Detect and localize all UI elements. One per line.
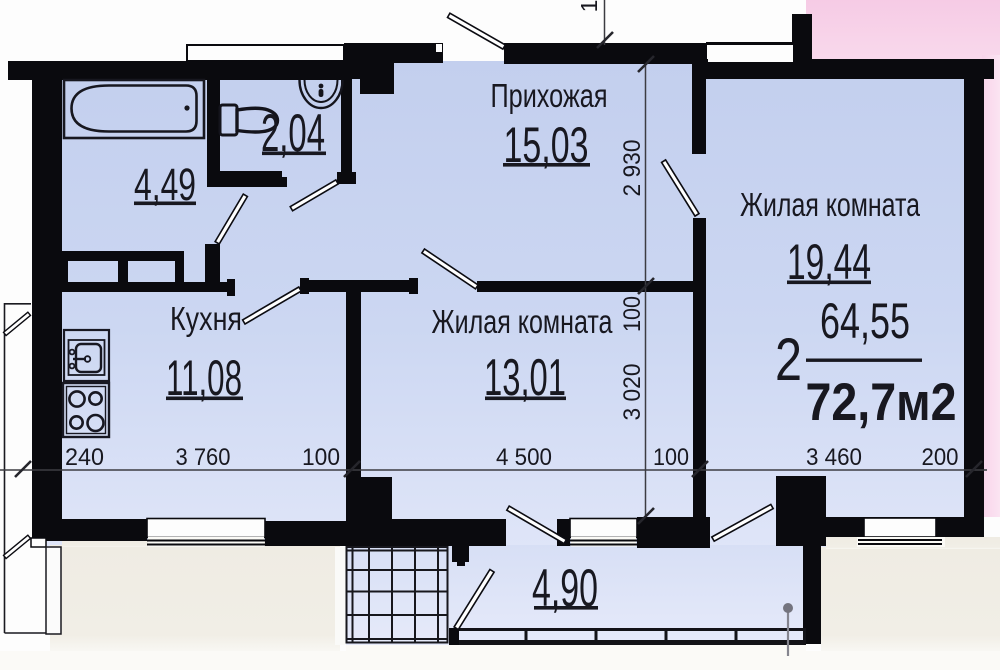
svg-text:2 930: 2 930 [619, 140, 646, 197]
svg-text:Прихожая: Прихожая [491, 77, 608, 114]
svg-text:Кухня: Кухня [170, 300, 242, 337]
svg-text:240: 240 [65, 444, 104, 471]
svg-text:72,7м2: 72,7м2 [806, 373, 957, 432]
svg-text:2: 2 [775, 326, 802, 393]
svg-text:64,55: 64,55 [820, 293, 910, 349]
svg-text:100: 100 [653, 444, 689, 471]
svg-text:3 460: 3 460 [806, 444, 862, 471]
svg-text:1: 1 [576, 0, 602, 12]
svg-text:Жилая комната: Жилая комната [432, 303, 613, 340]
svg-text:3 020: 3 020 [619, 364, 646, 421]
svg-text:200: 200 [922, 444, 959, 471]
svg-text:100: 100 [302, 444, 340, 471]
svg-text:3 760: 3 760 [176, 444, 231, 471]
svg-text:Жилая комната: Жилая комната [740, 186, 920, 223]
svg-text:4 500: 4 500 [496, 444, 552, 471]
svg-text:100: 100 [619, 296, 646, 332]
